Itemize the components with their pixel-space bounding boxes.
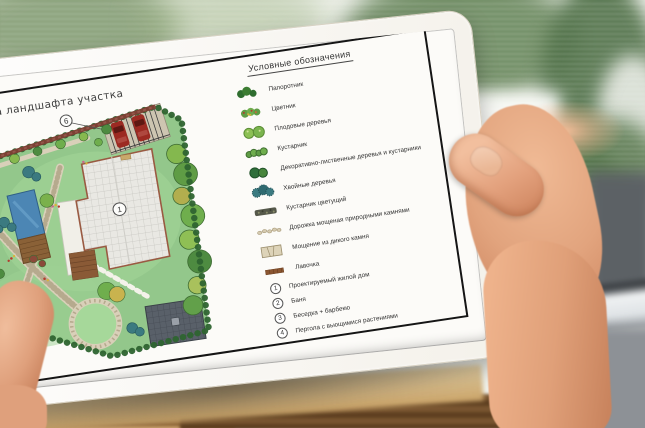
number-badge: 5 bbox=[278, 342, 291, 355]
number-badge: 4 bbox=[276, 327, 289, 340]
number-badge: 3 bbox=[274, 312, 287, 325]
fern-icon bbox=[234, 83, 262, 102]
number-badge: 2 bbox=[272, 297, 285, 310]
fruit-trees-icon bbox=[240, 123, 268, 142]
plan-document: Схема ландшафта участка bbox=[0, 28, 468, 393]
compass-east-label: В bbox=[31, 337, 40, 348]
bench-icon bbox=[261, 261, 289, 280]
conifer-icon bbox=[249, 182, 277, 201]
flowering-shrub-icon bbox=[252, 202, 280, 221]
shrub-icon bbox=[243, 143, 271, 162]
compass-north-label: С bbox=[3, 313, 11, 324]
wood-steps bbox=[69, 250, 99, 280]
number-badge: 6 bbox=[281, 357, 294, 370]
decorative-shrubs-icon bbox=[246, 162, 274, 181]
number-badge: 1 bbox=[269, 282, 282, 295]
photo-scene: Схема ландшафта участка bbox=[0, 0, 645, 428]
tablet-device: Схема ландшафта участка bbox=[0, 8, 507, 417]
stone-paving-icon bbox=[258, 241, 286, 260]
tablet-screen: Схема ландшафта участка bbox=[0, 28, 487, 398]
gray-floor bbox=[540, 326, 645, 428]
stone-path-icon bbox=[255, 222, 283, 241]
front-camera-icon bbox=[475, 173, 480, 178]
legend: Условные обозначения Папоротник Цветник … bbox=[229, 33, 466, 374]
flowerbed-icon bbox=[237, 103, 265, 122]
